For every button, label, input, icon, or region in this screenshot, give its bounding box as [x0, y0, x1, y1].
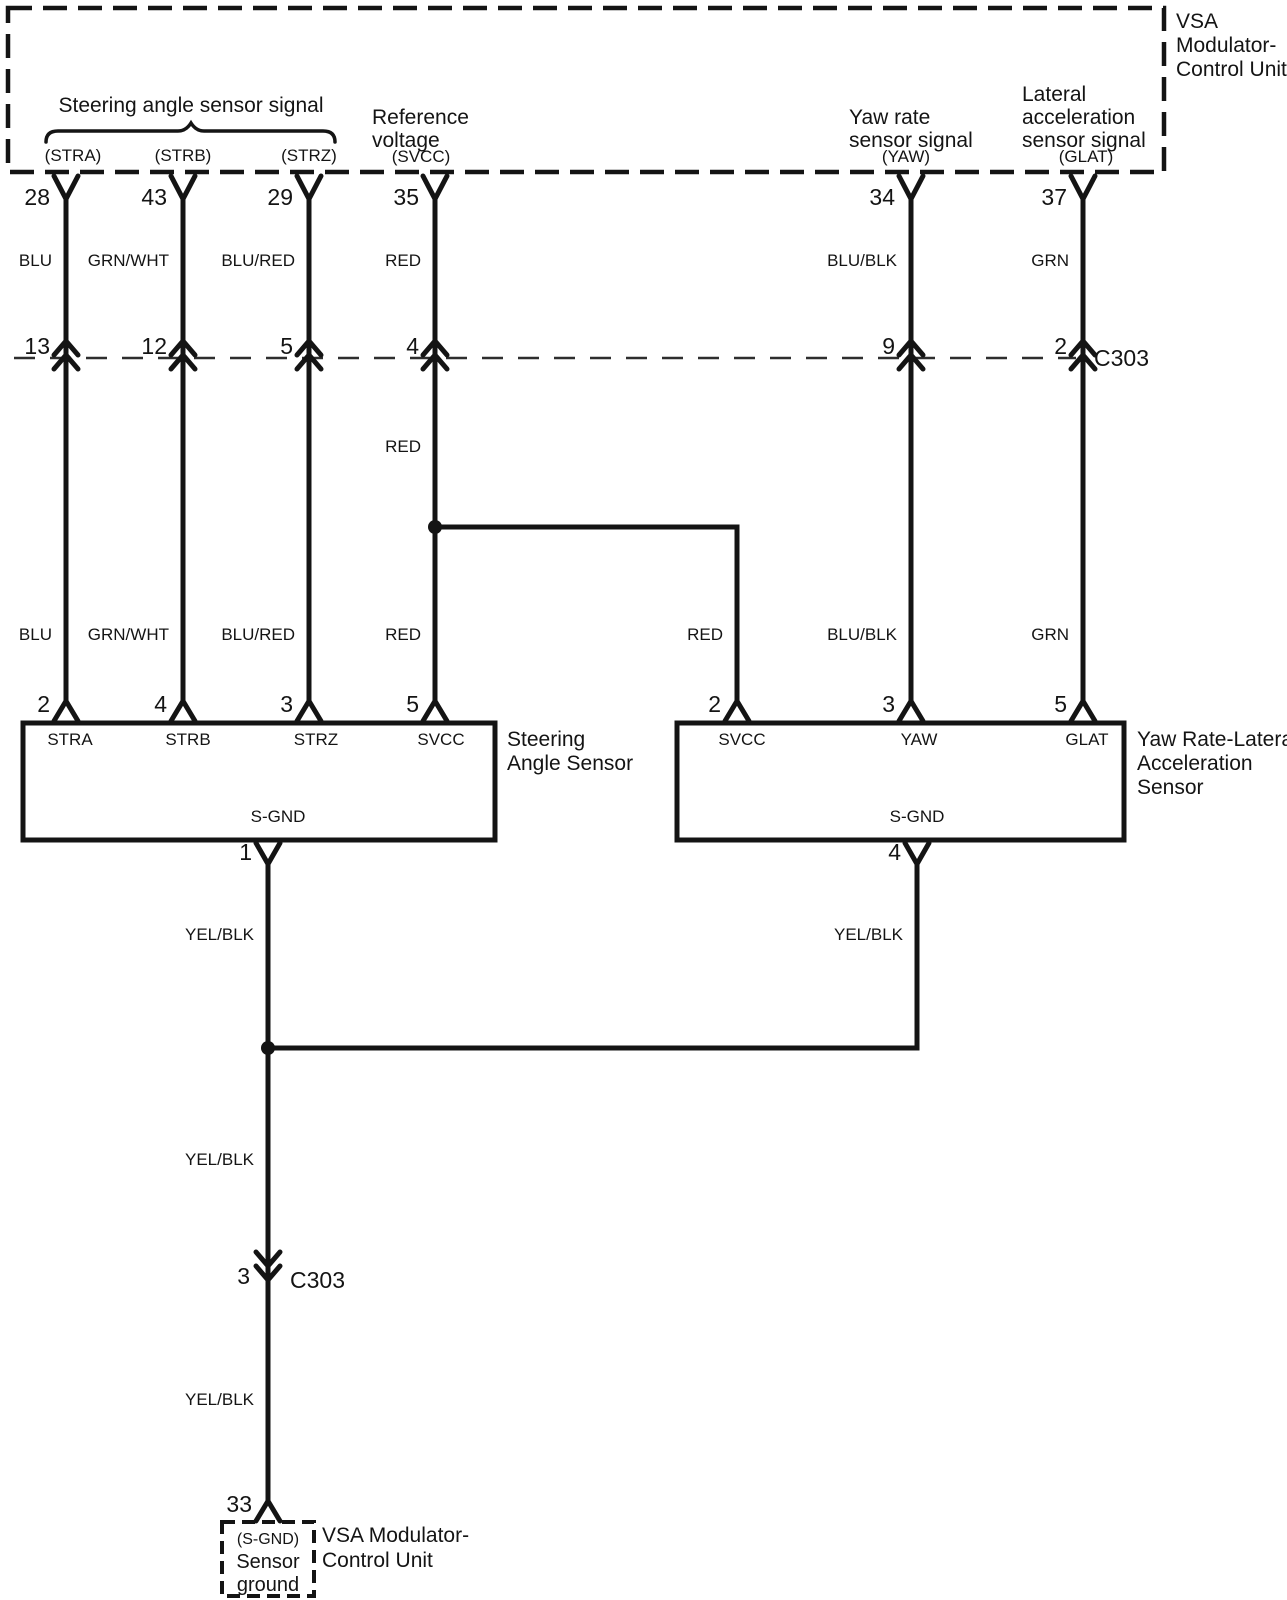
wire-color-yelblk-left: YEL/BLK: [185, 925, 255, 944]
steering-group-brace: [46, 123, 335, 142]
wire-color-blu-lower: BLU: [19, 625, 52, 644]
wire-svcc-branch: [435, 527, 737, 703]
c303-pin-4: 4: [406, 333, 419, 359]
sensor-pin-3-strz: 3: [280, 691, 293, 717]
lateral-accel-line2: acceleration: [1022, 106, 1135, 129]
steering-sensor-name-line2: Angle Sensor: [507, 752, 633, 775]
pin-number-37: 37: [1041, 184, 1067, 210]
terminal-fork-pin35: [423, 176, 447, 199]
steering-terminal-stra: STRA: [47, 730, 93, 749]
svcc-junction-dot: [428, 520, 442, 534]
wire-color-red-branch: RED: [687, 625, 723, 644]
wire-color-grn-upper: GRN: [1031, 251, 1069, 270]
terminal-fork-svcc-yawsensor: [725, 701, 749, 721]
wire-color-grn-lower: GRN: [1031, 625, 1069, 644]
yaw-rate-lateral-acceleration-sensor: SVCC YAW GLAT S-GND Yaw Rate-Lateral Acc…: [677, 723, 1287, 865]
wire-color-grnwht-lower: GRN/WHT: [88, 625, 169, 644]
wire-color-red-mid: RED: [385, 437, 421, 456]
label-stra: (STRA): [45, 146, 102, 165]
pin-number-35: 35: [393, 184, 419, 210]
c303-pin-9: 9: [882, 333, 895, 359]
wire-color-blured-lower: BLU/RED: [221, 625, 295, 644]
sensor-pin-3-yaw: 3: [882, 691, 895, 717]
terminal-fork-yaw: [899, 701, 923, 721]
label-strb: (STRB): [155, 146, 212, 165]
terminal-fork-pin29: [297, 176, 321, 199]
terminal-fork-pin28: [54, 176, 78, 199]
header-labels: Steering angle sensor signal (STRA) (STR…: [45, 83, 1146, 166]
wire-color-blured-upper: BLU/RED: [221, 251, 295, 270]
sensor-pin-5-glat: 5: [1054, 691, 1067, 717]
steering-group-label: Steering angle sensor signal: [58, 94, 323, 117]
yaw-terminal-sgnd: S-GND: [890, 807, 945, 826]
terminal-fork-strb: [171, 701, 195, 721]
sgnd-junction-dot: [261, 1041, 275, 1055]
yaw-rate-line1: Yaw rate: [849, 106, 930, 129]
wire-color-grnwht-upper: GRN/WHT: [88, 251, 169, 270]
lateral-accel-line1: Lateral: [1022, 83, 1086, 106]
vsa-bottom-name-line1: VSA Modulator-: [322, 1524, 469, 1547]
vsa-top-name-line1: VSA: [1176, 10, 1218, 33]
pin-number-33: 33: [226, 1491, 252, 1517]
vsa-bottom-terminal-line1: Sensor: [236, 1551, 300, 1573]
sgnd-pin-4: 4: [888, 839, 901, 865]
vsa-bottom-name-line2: Control Unit: [322, 1549, 433, 1572]
label-strz: (STRZ): [281, 146, 337, 165]
wires: [66, 197, 1083, 703]
yaw-sensor-name-line2: Acceleration: [1137, 752, 1253, 775]
steering-terminal-strb: STRB: [165, 730, 210, 749]
sensor-pin-5-svcc: 5: [406, 691, 419, 717]
wiring-diagram: VSA Modulator- Control Unit Steering ang…: [0, 0, 1287, 1600]
pin-number-34: 34: [869, 184, 895, 210]
vsa-top-name-line2: Modulator-: [1176, 34, 1276, 57]
reference-voltage-line1: Reference: [372, 106, 469, 129]
c303-pin-12: 12: [141, 333, 167, 359]
steering-terminal-svcc: SVCC: [417, 730, 464, 749]
vsa-bottom-terminal-line2: ground: [237, 1574, 299, 1596]
label-glat: (GLAT): [1059, 147, 1113, 166]
steering-terminal-strz: STRZ: [294, 730, 338, 749]
steering-angle-sensor: STRA STRB STRZ SVCC S-GND Steering Angle…: [23, 723, 633, 865]
c303-pin-5: 5: [280, 333, 293, 359]
c303-label-lower: C303: [290, 1267, 345, 1293]
sensor-entry-terminals: 2 4 3 5 2 3 5: [37, 691, 1095, 721]
terminal-fork-sgnd-4: [905, 843, 929, 864]
wire-color-blu-upper: BLU: [19, 251, 52, 270]
vsa-bottom-terminal-sgnd: (S-GND): [237, 1531, 299, 1548]
connector-c303-lower: 3 C303: [237, 1252, 345, 1293]
label-yaw: (YAW): [882, 147, 930, 166]
wire-color-blublk-upper: BLU/BLK: [827, 251, 898, 270]
c303-pin-13: 13: [24, 333, 50, 359]
label-svcc: (SVCC): [392, 147, 451, 166]
wire-sgnd-right: [268, 861, 917, 1048]
terminal-fork-strz: [297, 701, 321, 721]
ground-path: YEL/BLK YEL/BLK YEL/BLK YEL/BLK 3 C303 3…: [185, 861, 917, 1521]
terminal-fork-glat: [1071, 701, 1095, 721]
wire-color-yelblk-right: YEL/BLK: [834, 925, 904, 944]
sensor-pin-2-svcc-yaw: 2: [708, 691, 721, 717]
terminal-fork-pin34: [899, 176, 923, 199]
c303-label-upper: C303: [1094, 345, 1149, 371]
wire-color-blublk-lower: BLU/BLK: [827, 625, 898, 644]
sensor-pin-2-stra: 2: [37, 691, 50, 717]
wire-color-red-upper: RED: [385, 251, 421, 270]
yaw-terminal-yaw: YAW: [901, 730, 938, 749]
wire-color-yelblk-lower: YEL/BLK: [185, 1390, 255, 1409]
yaw-terminal-glat: GLAT: [1065, 730, 1108, 749]
vsa-top-name-line3: Control Unit: [1176, 58, 1287, 81]
pin-number-29: 29: [267, 184, 293, 210]
steering-terminal-sgnd: S-GND: [251, 807, 306, 826]
pin-number-28: 28: [24, 184, 50, 210]
terminal-fork-svcc-steering: [423, 701, 447, 721]
wire-color-red-lower: RED: [385, 625, 421, 644]
vsa-modulator-control-unit-bottom: (S-GND) Sensor ground VSA Modulator- Con…: [222, 1522, 469, 1596]
yaw-sensor-name-line3: Sensor: [1137, 776, 1204, 799]
terminal-fork-sgnd-1: [256, 843, 280, 864]
sensor-pin-4-strb: 4: [154, 691, 167, 717]
pin-number-43: 43: [141, 184, 167, 210]
yaw-sensor-name-line1: Yaw Rate-Lateral: [1137, 728, 1287, 751]
sgnd-pin-1: 1: [239, 839, 252, 865]
terminal-fork-stra: [54, 701, 78, 721]
c303-pin-3: 3: [237, 1263, 250, 1289]
steering-sensor-name-line1: Steering: [507, 728, 585, 751]
c303-pin-2: 2: [1054, 333, 1067, 359]
yaw-terminal-svcc: SVCC: [718, 730, 765, 749]
terminal-fork-pin33: [256, 1501, 280, 1521]
wire-color-yelblk-mid: YEL/BLK: [185, 1150, 255, 1169]
terminal-fork-pin43: [171, 176, 195, 199]
terminal-fork-pin37: [1071, 176, 1095, 199]
